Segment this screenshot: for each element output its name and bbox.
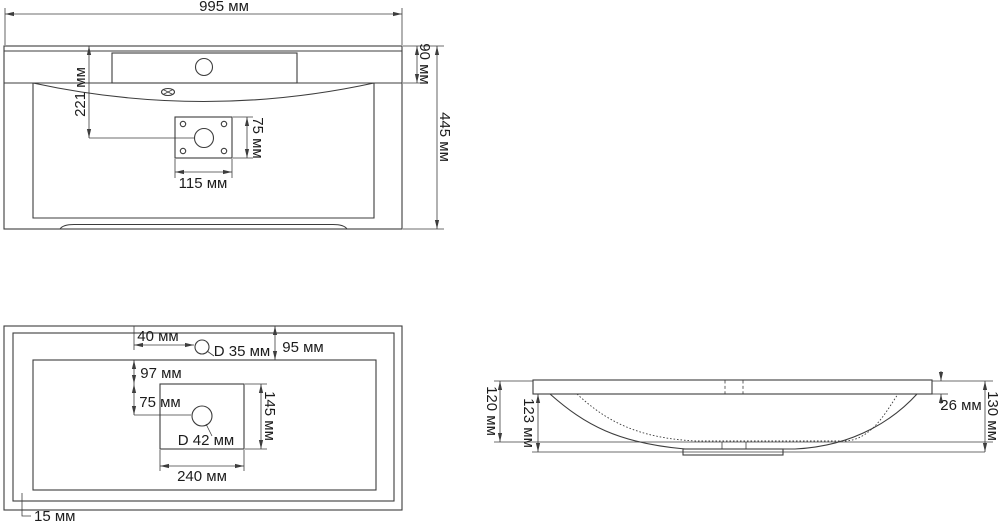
overflow-icon bbox=[162, 89, 175, 96]
dim-recess-width: 240 мм bbox=[177, 468, 227, 485]
front-plate-hole bbox=[180, 148, 185, 153]
dim-recess-to-drain: 75 мм bbox=[139, 394, 180, 411]
side-bowl-inner-curve bbox=[577, 394, 898, 441]
dim-overall-width: 995 мм bbox=[199, 0, 249, 15]
plan-view: 40 мм D 35 мм 95 мм 97 мм 75 мм 145 мм D… bbox=[4, 326, 402, 525]
front-base-foot bbox=[60, 225, 347, 230]
technical-drawing-washbasin: 995 мм 221 мм 90 мм 445 мм 75 мм 115 мм bbox=[0, 0, 1000, 526]
dim-faucet-offset: 40 мм bbox=[137, 328, 178, 345]
dim-drain-diameter: D 42 мм bbox=[178, 432, 234, 449]
front-outer-outline bbox=[4, 46, 402, 229]
front-mounting-plate bbox=[175, 117, 232, 158]
side-rim-slab bbox=[533, 380, 932, 394]
front-drain-hole bbox=[195, 129, 214, 148]
dim-recess-depth: 145 мм bbox=[261, 391, 278, 441]
dim-edge-to-bowl: 95 мм bbox=[282, 339, 323, 356]
front-plate-hole bbox=[221, 148, 226, 153]
plan-faucet-hole bbox=[195, 340, 209, 354]
front-plate-hole bbox=[180, 121, 185, 126]
dim-plate-height: 75 мм bbox=[249, 117, 266, 158]
front-view: 995 мм 221 мм 90 мм 445 мм 75 мм 115 мм bbox=[4, 0, 453, 229]
dim-plate-width: 115 мм bbox=[179, 175, 228, 192]
dim-bowl-to-recess: 97 мм bbox=[140, 365, 181, 382]
side-view: 120 мм 123 мм 26 мм 130 мм bbox=[483, 371, 1000, 455]
dim-faucet-diameter: D 35 мм bbox=[214, 343, 270, 360]
dim-rim-thickness: 26 мм bbox=[940, 397, 981, 414]
leader-line bbox=[22, 493, 31, 516]
dim-body-depth: 123 мм bbox=[520, 398, 537, 448]
plan-drain-hole bbox=[192, 406, 212, 426]
front-faucet-hole bbox=[196, 59, 213, 76]
front-plate-hole bbox=[221, 121, 226, 126]
dim-bowl-depth: 120 мм bbox=[483, 386, 500, 436]
dim-top-to-drain: 221 мм bbox=[72, 67, 89, 117]
dim-rim-to-bowl: 90 мм bbox=[416, 43, 433, 84]
dim-overall-height: 445 мм bbox=[436, 112, 453, 162]
dim-side-overall-height: 130 мм bbox=[984, 391, 1000, 441]
dim-rim-width: 15 мм bbox=[34, 508, 75, 525]
front-backsplash-recess bbox=[112, 53, 297, 83]
